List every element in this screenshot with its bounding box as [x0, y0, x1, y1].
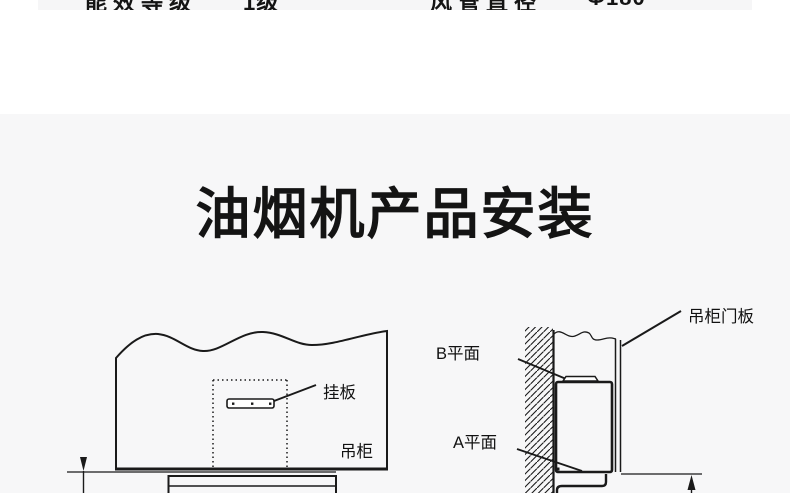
dimension-arrow-down-icon: [80, 457, 87, 493]
cabinet-front-diagram: 挂板 吊柜: [60, 310, 410, 493]
a-plane-label: A平面: [453, 434, 497, 452]
cabinet-door-panel: [616, 339, 621, 472]
break-line: [554, 332, 616, 340]
top-plate: [563, 377, 598, 382]
cabinet-side-diagram: 吊柜门板 B平面 A平面: [420, 280, 790, 493]
hood-body: [169, 476, 337, 493]
b-plane-label: B平面: [436, 345, 480, 363]
page: 能效等级 1级 风管直径 Φ180 油烟机产品安装 挂板 吊柜: [0, 0, 790, 493]
door-panel-leader-line: [622, 311, 681, 346]
spec-right-label: 风管直径: [430, 0, 542, 10]
dimension-arrow-up-icon: [688, 475, 696, 493]
door-panel-label: 吊柜门板: [688, 307, 754, 326]
spec-row-clipped: 能效等级 1级 风管直径 Φ180: [38, 0, 752, 10]
hood-top-profile: [557, 474, 606, 493]
spec-left-value: 1级: [243, 0, 279, 10]
page-title: 油烟机产品安装: [0, 184, 790, 245]
hang-plate-label: 挂板: [323, 383, 356, 402]
hang-plate-leader-line: [274, 385, 316, 401]
hood-outline-dotted: [213, 380, 287, 468]
spec-left-label: 能效等级: [85, 0, 197, 10]
spec-right-value: Φ180: [587, 0, 646, 10]
cabinet-label: 吊柜: [340, 442, 373, 461]
wall-hatch: [525, 327, 553, 493]
hood-side-box: [556, 382, 612, 472]
a-plane-point: [557, 468, 560, 471]
